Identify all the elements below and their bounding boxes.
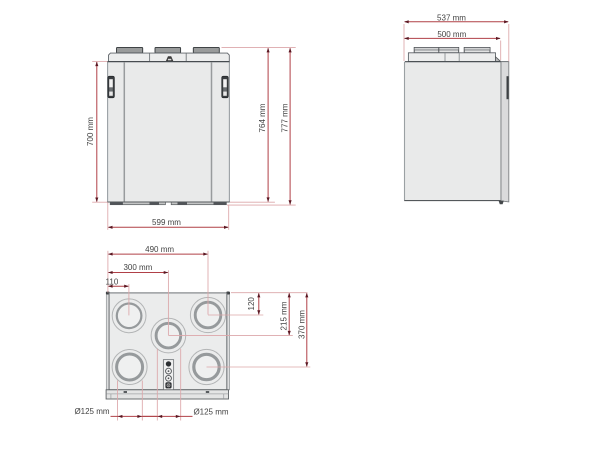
svg-text:500 mm: 500 mm (437, 30, 466, 39)
svg-text:370 mm: 370 mm (298, 310, 307, 339)
svg-text:777 mm: 777 mm (281, 103, 290, 132)
svg-text:490 mm: 490 mm (145, 245, 174, 254)
svg-text:Ø125 mm: Ø125 mm (74, 407, 109, 416)
svg-text:764 mm: 764 mm (258, 103, 267, 132)
svg-text:599 mm: 599 mm (152, 218, 181, 227)
svg-text:Ø125 mm: Ø125 mm (193, 407, 228, 416)
svg-text:537 mm: 537 mm (437, 13, 466, 22)
svg-text:215 mm: 215 mm (279, 301, 288, 330)
svg-text:700 mm: 700 mm (86, 117, 95, 146)
svg-text:120: 120 (247, 297, 256, 311)
svg-text:110: 110 (106, 278, 119, 287)
svg-text:300 mm: 300 mm (123, 263, 152, 272)
